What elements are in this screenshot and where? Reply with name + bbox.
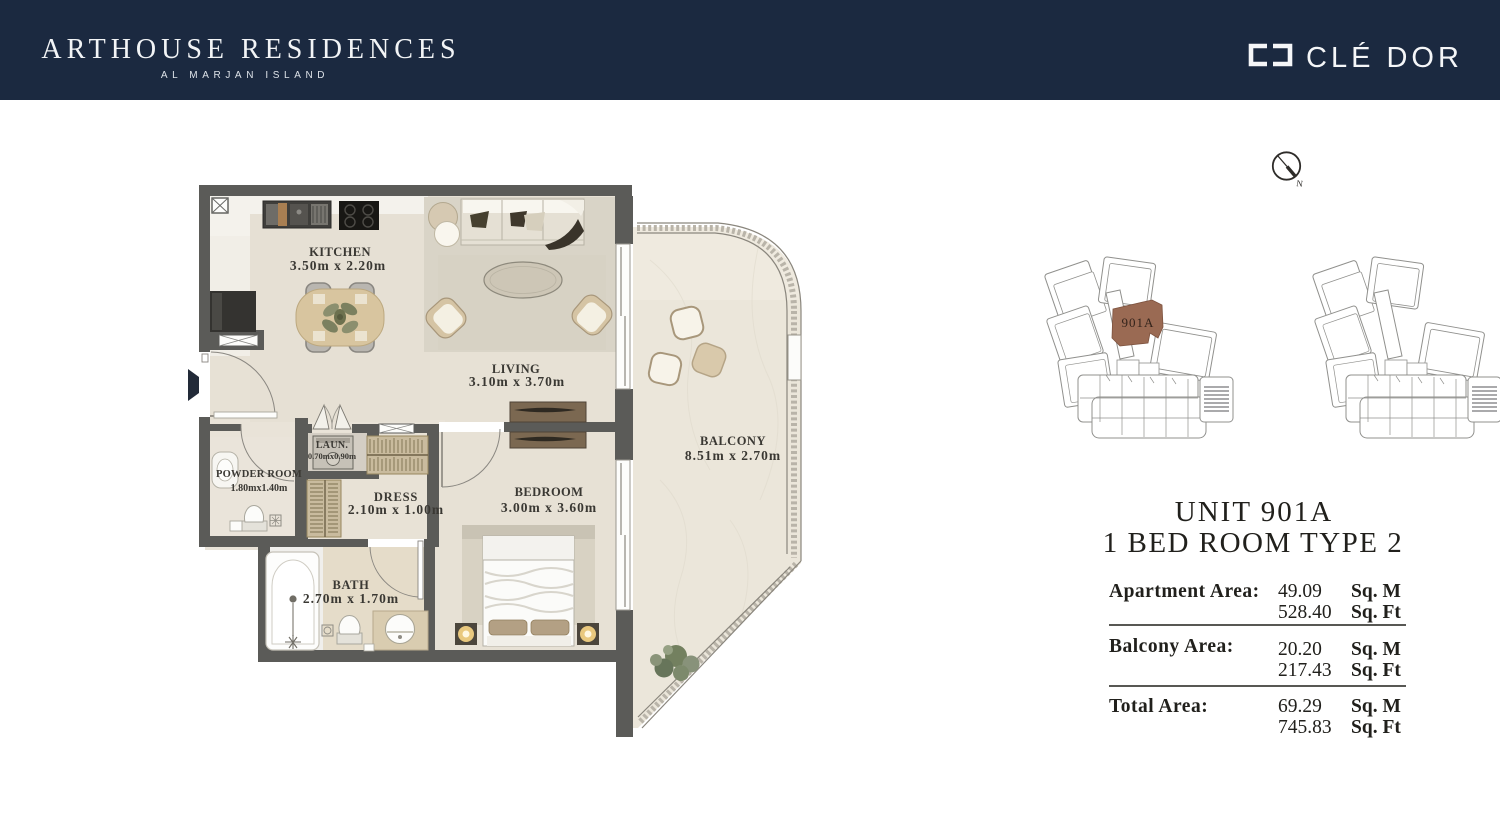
svg-text:CLÉ DOR: CLÉ DOR — [1306, 41, 1463, 74]
svg-text:Apartment Area:: Apartment Area: — [1109, 581, 1260, 602]
svg-text:2.70m x 1.70m: 2.70m x 1.70m — [303, 591, 399, 606]
svg-text:Total Area:: Total Area: — [1109, 696, 1208, 717]
svg-text:Balcony Area:: Balcony Area: — [1109, 636, 1234, 657]
svg-text:KITCHEN: KITCHEN — [309, 245, 371, 259]
svg-text:BALCONY: BALCONY — [700, 434, 766, 448]
svg-text:1 BED ROOM TYPE 2: 1 BED ROOM TYPE 2 — [1103, 527, 1404, 559]
svg-text:UNIT 901A: UNIT 901A — [1175, 496, 1333, 528]
svg-text:Sq. M: Sq. M — [1351, 696, 1401, 717]
svg-text:3.10m x 3.70m: 3.10m x 3.70m — [469, 374, 565, 389]
svg-text:49.09: 49.09 — [1278, 581, 1322, 602]
svg-text:Sq. Ft: Sq. Ft — [1351, 717, 1401, 738]
svg-text:Sq. M: Sq. M — [1351, 639, 1401, 660]
svg-text:POWDER ROOM: POWDER ROOM — [216, 469, 302, 480]
svg-text:901A: 901A — [1122, 315, 1155, 330]
svg-text:BEDROOM: BEDROOM — [515, 485, 584, 499]
svg-text:69.29: 69.29 — [1278, 696, 1322, 717]
svg-text:217.43: 217.43 — [1278, 660, 1332, 681]
svg-text:LAUN.: LAUN. — [316, 440, 349, 451]
svg-text:Sq. Ft: Sq. Ft — [1351, 660, 1401, 681]
svg-text:20.20: 20.20 — [1278, 639, 1322, 660]
svg-text:BATH: BATH — [333, 578, 370, 592]
svg-text:2.10m x 1.00m: 2.10m x 1.00m — [348, 502, 444, 517]
svg-text:3.50m x 2.20m: 3.50m x 2.20m — [290, 258, 386, 273]
svg-text:8.51m x 2.70m: 8.51m x 2.70m — [685, 448, 781, 463]
svg-text:528.40: 528.40 — [1278, 602, 1332, 623]
svg-text:0.70mx0.90m: 0.70mx0.90m — [308, 451, 356, 461]
svg-text:AL MARJAN ISLAND: AL MARJAN ISLAND — [161, 70, 329, 81]
svg-text:ARTHOUSE RESIDENCES: ARTHOUSE RESIDENCES — [41, 34, 460, 65]
svg-text:745.83: 745.83 — [1278, 717, 1332, 738]
svg-text:Sq. Ft: Sq. Ft — [1351, 602, 1401, 623]
svg-text:1.80mx1.40m: 1.80mx1.40m — [231, 483, 288, 494]
svg-text:3.00m x 3.60m: 3.00m x 3.60m — [501, 500, 597, 515]
svg-text:Sq. M: Sq. M — [1351, 581, 1401, 602]
